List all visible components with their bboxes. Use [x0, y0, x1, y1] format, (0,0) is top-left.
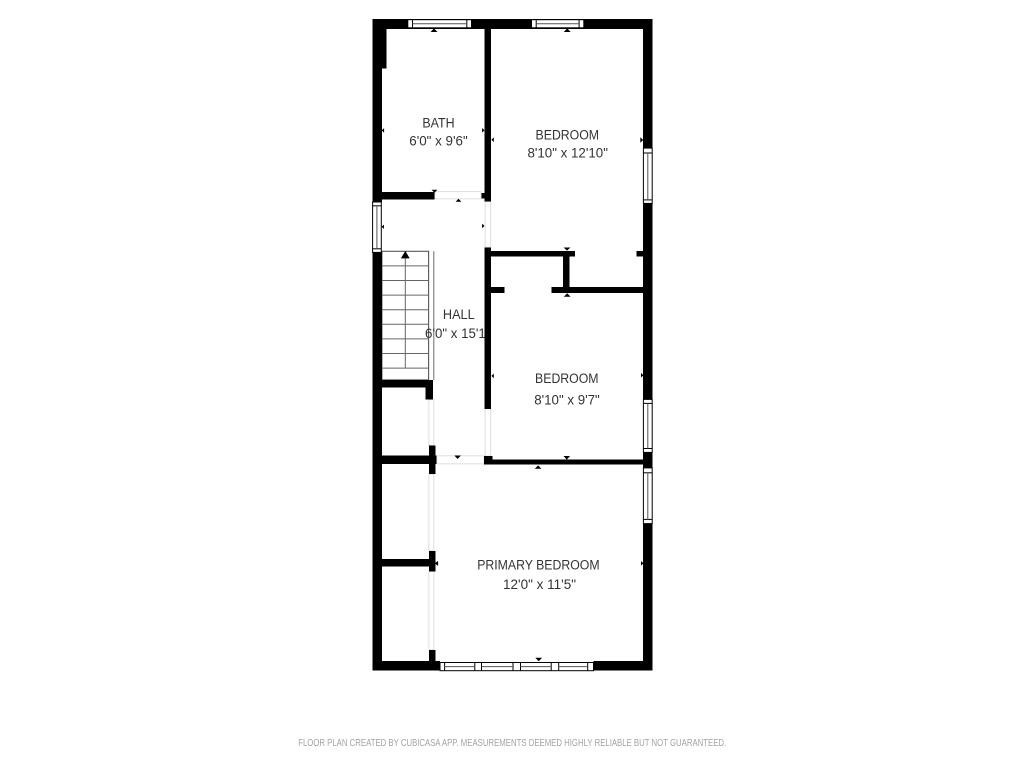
svg-text:6'0" x 9'6": 6'0" x 9'6": [409, 133, 468, 148]
svg-text:BEDROOM: BEDROOM: [535, 371, 599, 386]
svg-text:8'10" x 12'10": 8'10" x 12'10": [527, 146, 608, 161]
svg-text:12'0" x 11'5": 12'0" x 11'5": [503, 577, 576, 592]
svg-text:PRIMARY BEDROOM: PRIMARY BEDROOM: [477, 558, 599, 573]
svg-text:FLOOR PLAN CREATED BY CUBICASA: FLOOR PLAN CREATED BY CUBICASA APP. MEAS…: [298, 738, 726, 749]
svg-text:8'10" x 9'7": 8'10" x 9'7": [534, 392, 600, 407]
svg-text:BEDROOM: BEDROOM: [536, 128, 600, 143]
svg-text:HALL: HALL: [443, 307, 475, 322]
svg-text:6'0" x 15'1": 6'0" x 15'1": [425, 326, 491, 341]
svg-text:BATH: BATH: [422, 116, 454, 131]
